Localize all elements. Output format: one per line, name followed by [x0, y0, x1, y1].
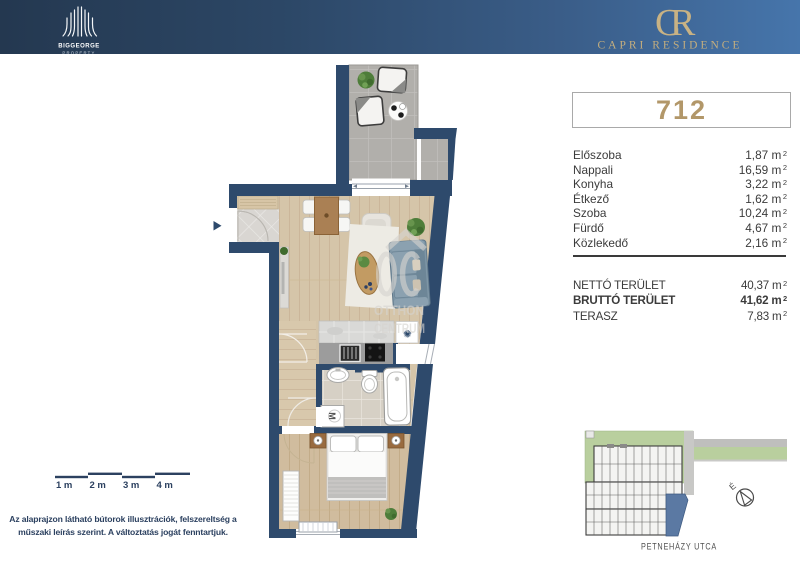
svg-text:PETNEHÁZY UTCA: PETNEHÁZY UTCA	[641, 542, 717, 553]
svg-text:CENTRUM: CENTRUM	[374, 321, 425, 336]
svg-text:M: M	[327, 412, 337, 420]
svg-text:1 m: 1 m	[56, 480, 72, 491]
svg-text:3 m: 3 m	[123, 480, 139, 491]
svg-text:4 m: 4 m	[157, 480, 173, 491]
svg-text:É: É	[727, 481, 738, 493]
svg-text:2 m: 2 m	[90, 480, 106, 491]
svg-text:OTTHON: OTTHON	[374, 303, 424, 318]
